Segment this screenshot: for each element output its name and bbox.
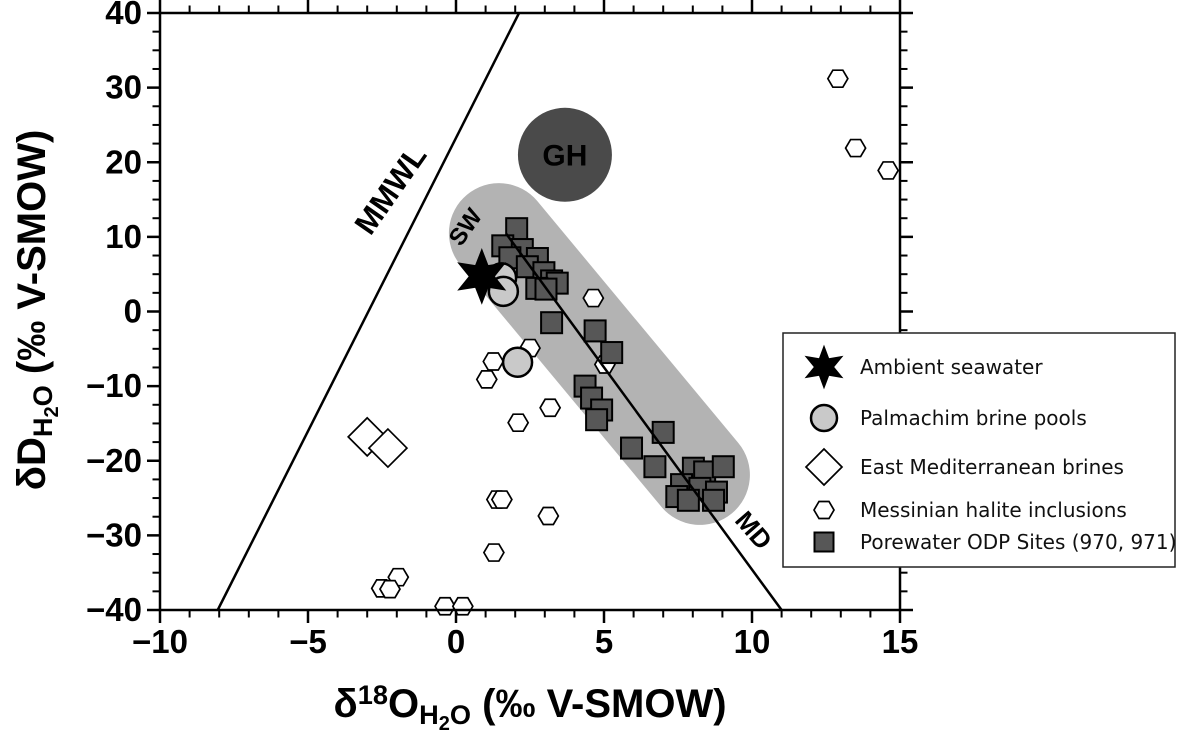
square-data-point xyxy=(713,456,734,477)
hexagon-data-point xyxy=(484,544,504,561)
legend-item-label: Porewater ODP Sites (970, 971) xyxy=(860,530,1176,554)
y-tick-label: −40 xyxy=(86,591,142,628)
y-tick-label: −30 xyxy=(86,516,142,553)
hexagon-data-point xyxy=(828,70,848,87)
hexagon-data-point xyxy=(878,162,898,179)
hexagon-data-point xyxy=(380,581,400,598)
hexagon-data-point xyxy=(492,491,512,508)
hexagon-data-point xyxy=(508,414,528,431)
y-tick-label: 40 xyxy=(105,0,142,31)
md-line xyxy=(506,234,781,610)
x-axis-title: δ18OH2O (‰ V-SMOW) xyxy=(333,679,726,735)
y-tick-label: 30 xyxy=(105,69,142,106)
hexagon-data-point xyxy=(583,290,603,307)
square-data-point xyxy=(601,342,622,363)
legend-item-label: East Mediterranean brines xyxy=(860,455,1124,479)
legend-marker-square xyxy=(815,533,834,552)
square-data-point xyxy=(586,409,607,430)
hexagon-data-point xyxy=(540,399,560,416)
y-tick-label: 20 xyxy=(105,143,142,180)
hexagon-data-point xyxy=(483,353,503,370)
x-tick-label: −10 xyxy=(132,623,188,660)
y-tick-label: 0 xyxy=(124,293,142,330)
legend-marker-hexagon xyxy=(814,502,834,519)
circle-data-point xyxy=(503,348,532,377)
square-data-point xyxy=(541,312,562,333)
legend-item-label: Palmachim brine pools xyxy=(860,406,1087,430)
legend-item-label: Messinian halite inclusions xyxy=(860,498,1127,522)
mmwl-line xyxy=(218,13,519,610)
x-tick-label: 5 xyxy=(595,623,613,660)
square-data-point xyxy=(585,320,606,341)
x-tick-label: −5 xyxy=(289,623,327,660)
figure-container: GH −10−5051015−40−30−20−10010203040 MMWL… xyxy=(0,0,1181,738)
y-axis-title: δDH2O (‰ V-SMOW) xyxy=(10,130,63,491)
legend: Ambient seawater Palmachim brine pools E… xyxy=(783,333,1176,567)
hexagon-data-point xyxy=(846,140,866,157)
y-tick-label: −20 xyxy=(86,442,142,479)
hexagon-data-point xyxy=(538,507,558,524)
legend-marker-circle xyxy=(811,405,837,431)
legend-item-label: Ambient seawater xyxy=(860,355,1043,379)
square-data-point xyxy=(644,456,665,477)
series-diamond xyxy=(348,418,407,467)
gh-label: GH xyxy=(542,140,587,173)
square-data-point xyxy=(621,438,642,459)
x-tick-label: 0 xyxy=(447,623,465,660)
x-tick-label: 15 xyxy=(882,623,919,660)
y-tick-label: 10 xyxy=(105,218,142,255)
y-tick-label: −10 xyxy=(86,367,142,404)
mmwl-annotation: MMWL xyxy=(348,139,434,241)
hexagon-data-point xyxy=(477,371,497,388)
isotope-scatter-plot: GH −10−5051015−40−30−20−10010203040 MMWL… xyxy=(0,0,1181,738)
x-tick-label: 10 xyxy=(734,623,771,660)
